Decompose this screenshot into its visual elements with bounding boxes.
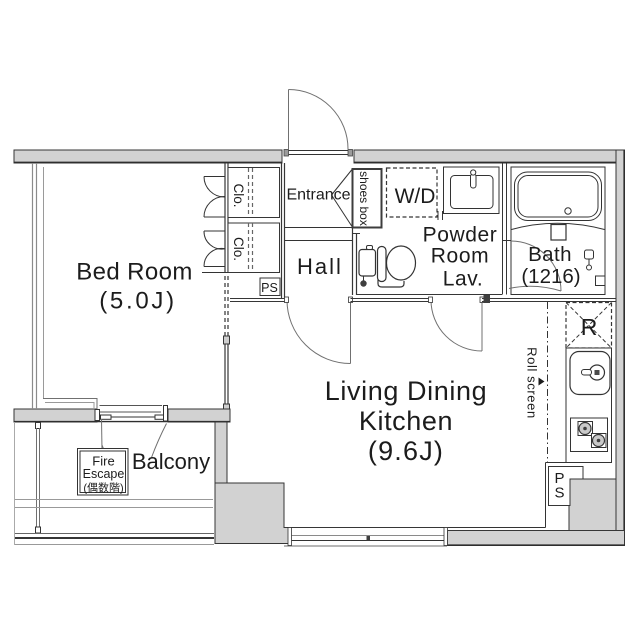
svg-text:Living Dining: Living Dining — [325, 376, 487, 406]
svg-text:Entrance: Entrance — [286, 187, 350, 204]
svg-text:W/D: W/D — [395, 185, 436, 208]
svg-text:S: S — [554, 485, 564, 502]
svg-text:Hall: Hall — [297, 254, 343, 279]
svg-text:Bath: Bath — [528, 243, 572, 266]
svg-text:(偶数階): (偶数階) — [83, 481, 123, 495]
svg-text:Escape: Escape — [83, 467, 125, 481]
svg-text:Lav.: Lav. — [443, 268, 484, 291]
svg-text:(1216): (1216) — [521, 265, 580, 288]
svg-text:Powder: Powder — [423, 224, 498, 247]
svg-text:Clo.: Clo. — [231, 237, 246, 261]
svg-text:R: R — [581, 314, 598, 340]
svg-text:Clo.: Clo. — [231, 183, 246, 207]
svg-text:Bed Room: Bed Room — [76, 259, 193, 286]
svg-text:(9.6J): (9.6J) — [368, 436, 444, 466]
svg-text:Room: Room — [431, 245, 489, 268]
svg-text:Kitchen: Kitchen — [359, 406, 453, 436]
svg-text:shoes box: shoes box — [357, 171, 371, 226]
svg-text:Roll screen: Roll screen — [525, 347, 540, 419]
svg-text:(5.0J): (5.0J) — [99, 288, 177, 315]
svg-text:Balcony: Balcony — [132, 449, 210, 474]
svg-text:PS: PS — [261, 281, 278, 295]
